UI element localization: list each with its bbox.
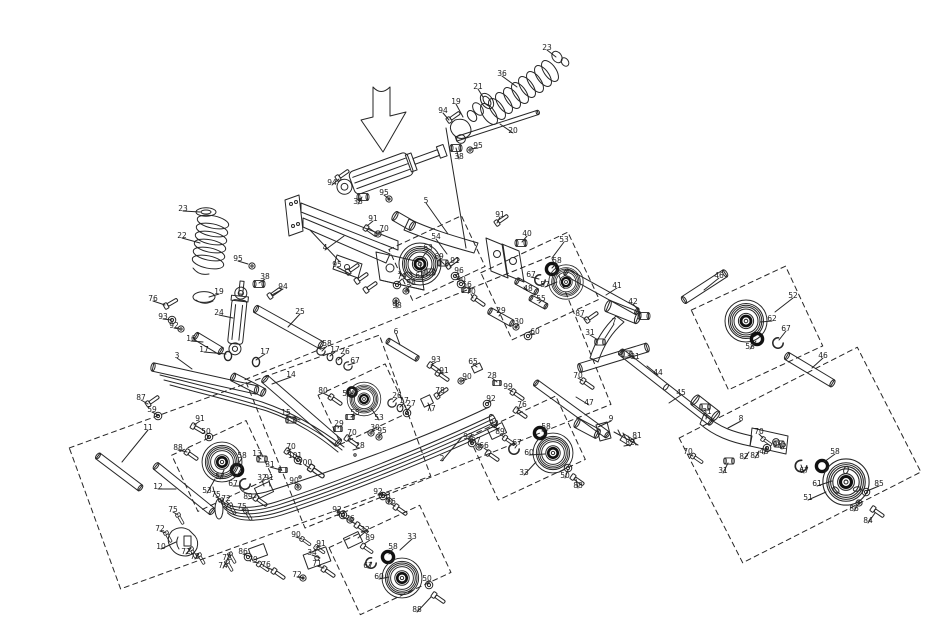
part-number-callout: 91 xyxy=(450,256,460,265)
diagram-canvas: 2336211994209538949538591702322199538942… xyxy=(0,0,949,621)
part-number-callout: 67 xyxy=(781,324,791,333)
parts-diagram: 2336211994209538949538591702322199538942… xyxy=(0,0,949,621)
part-number-callout: 75 xyxy=(237,502,247,511)
part-number-callout: 84 xyxy=(863,516,873,525)
part-number-callout: 22 xyxy=(177,231,187,240)
part-number-callout: 57 xyxy=(540,280,550,289)
part-number-callout: 89 xyxy=(243,492,253,501)
part-number-callout: 55 xyxy=(350,408,360,417)
part-number-callout: 88 xyxy=(412,605,422,614)
part-number-callout: 46 xyxy=(714,271,724,280)
part-number-callout: 91 xyxy=(368,214,378,223)
part-number-callout: 94 xyxy=(278,282,288,291)
part-number-callout: 31 xyxy=(702,407,712,416)
part-number-callout: 72 xyxy=(292,570,302,579)
part-number-callout: 42 xyxy=(777,442,787,451)
part-number-callout: 5 xyxy=(424,196,429,205)
part-number-callout: 77 xyxy=(426,404,436,413)
part-number-callout: 58 xyxy=(552,256,562,265)
part-number-callout: 25 xyxy=(295,307,305,316)
part-number-callout: 93 xyxy=(431,355,441,364)
front-shock-absorber xyxy=(225,280,250,355)
part-number-callout: 76 xyxy=(148,294,158,303)
part-number-callout: 76 xyxy=(386,497,396,506)
leader-line xyxy=(122,430,148,462)
part-number-callout: 60 xyxy=(524,448,534,457)
part-number-callout: 58 xyxy=(541,422,551,431)
part-number-callout: 38 xyxy=(454,152,464,161)
part-number-callout: 19 xyxy=(214,287,224,296)
part-number-callout: 58 xyxy=(830,447,840,456)
front-spring-assembly xyxy=(191,208,230,303)
part-number-callout: 95 xyxy=(233,254,243,263)
part-number-callout: 23 xyxy=(178,204,188,213)
part-number-callout: 91 xyxy=(264,473,274,482)
part-number-callout: 26 xyxy=(340,347,350,356)
part-number-callout: 70 xyxy=(466,287,476,296)
part-number-callout: 46 xyxy=(818,351,828,360)
part-number-callout: 52 xyxy=(788,291,798,300)
leader-line xyxy=(426,203,448,234)
part-number-callout: 70 xyxy=(754,427,764,436)
part-number-callout: 72 xyxy=(155,524,165,533)
left-rail xyxy=(150,362,344,452)
part-number-callout: 50 xyxy=(422,574,432,583)
part-number-callout: 75 xyxy=(168,505,178,514)
part-number-callouts: 2336211994209538949538591702322199538942… xyxy=(136,43,884,614)
part-number-callout: 70 xyxy=(286,442,296,451)
part-number-callout: 38 xyxy=(353,197,363,206)
part-number-callout: 95 xyxy=(473,141,483,150)
part-number-callout: 88 xyxy=(173,443,183,452)
part-number-callout: 48 xyxy=(523,284,533,293)
part-number-callout: 91 xyxy=(495,210,505,219)
part-number-callout: 75 xyxy=(211,490,221,499)
part-number-callout: 58 xyxy=(237,451,247,460)
part-number-callout: 98 xyxy=(392,301,402,310)
part-number-callout: 19 xyxy=(451,97,461,106)
part-number-callout: 12 xyxy=(153,482,163,491)
part-number-callout: 4 xyxy=(323,243,328,252)
part-number-callout: 91 xyxy=(195,414,205,423)
part-number-callout: 92 xyxy=(486,394,496,403)
rear-arm-8 xyxy=(689,394,788,454)
part-number-callout: 17 xyxy=(260,347,270,356)
part-number-callout: 76 xyxy=(517,400,527,409)
part-number-callout: 67 xyxy=(228,479,238,488)
part-number-callout: 9 xyxy=(609,414,614,423)
part-number-callout: 58 xyxy=(388,542,398,551)
part-number-callout: 27 xyxy=(406,399,416,408)
part-number-callout: 47 xyxy=(584,398,594,407)
part-number-callout: 78 xyxy=(435,386,445,395)
part-number-callout: 10 xyxy=(156,542,166,551)
part-number-callout: 2 xyxy=(440,454,445,463)
part-number-callout: 23 xyxy=(542,43,552,52)
part-number-callout: 28 xyxy=(487,371,497,380)
part-number-callout: 40 xyxy=(522,229,532,238)
part-number-callout: 82 xyxy=(739,452,749,461)
part-number-callout: 16 xyxy=(186,334,196,343)
part-number-callout: 33 xyxy=(407,532,417,541)
part-number-callout: 58 xyxy=(745,342,755,351)
part-number-callout: 33 xyxy=(519,468,529,477)
part-number-callout: 54 xyxy=(431,232,441,241)
part-number-callout: 95 xyxy=(332,260,342,269)
part-number-callout: 36 xyxy=(497,69,507,78)
part-number-callout: 69 xyxy=(434,252,444,261)
part-number-callout: 86 xyxy=(849,504,859,513)
part-number-callout: 29 xyxy=(334,419,344,428)
part-number-callout: 63 xyxy=(423,243,433,252)
leader-lines xyxy=(122,50,879,612)
part-number-callout: 100 xyxy=(298,458,313,467)
part-number-callout: 92 xyxy=(169,321,179,330)
part-number-callout: 20 xyxy=(508,126,518,135)
part-number-callout: 87 xyxy=(136,393,146,402)
part-number-callout: 95 xyxy=(379,188,389,197)
part-number-callout: 91 xyxy=(316,539,326,548)
part-number-callout: 80 xyxy=(318,386,328,395)
part-number-callout: 67 xyxy=(363,561,373,570)
part-number-callout: 76 xyxy=(345,514,355,523)
part-number-callout: 67 xyxy=(350,356,360,365)
part-number-callout: 51 xyxy=(803,493,813,502)
part-number-callout: 67 xyxy=(512,438,522,447)
part-number-callout: 50 xyxy=(201,427,211,436)
part-number-callout: 7 xyxy=(612,317,617,326)
part-number-callout: 57 xyxy=(215,472,225,481)
part-number-callout: 62 xyxy=(767,314,777,323)
part-number-callout: 76 xyxy=(261,560,271,569)
part-number-callout: 64 xyxy=(415,271,425,280)
part-number-callout: 60 xyxy=(374,572,384,581)
part-number-callout: 90 xyxy=(291,530,301,539)
part-number-callout: 43 xyxy=(759,447,769,456)
part-number-callout: 50 xyxy=(560,471,570,480)
part-number-callout: 99 xyxy=(503,382,513,391)
part-number-callout: 8 xyxy=(739,414,744,423)
part-number-callout: 24 xyxy=(214,308,224,317)
part-number-callout: 53 xyxy=(374,413,384,422)
part-number-callout: 53 xyxy=(559,235,569,244)
part-number-callout: 14 xyxy=(286,370,296,379)
part-number-callout: 94 xyxy=(327,178,337,187)
part-number-callout: 70 xyxy=(573,371,583,380)
part-number-callout: 85 xyxy=(874,479,884,488)
part-number-callout: 3 xyxy=(175,351,180,360)
part-number-callout: 61 xyxy=(812,479,822,488)
part-number-callout: 87 xyxy=(575,309,585,318)
part-number-callout: 60 xyxy=(530,327,540,336)
part-number-callout: 72 xyxy=(221,494,231,503)
rear-spring-assembly xyxy=(446,49,571,248)
part-number-callout: 70 xyxy=(347,428,357,437)
part-number-callout: 83 xyxy=(750,451,760,460)
part-number-callout: 86 xyxy=(238,547,248,556)
part-number-callout: 17 xyxy=(199,345,209,354)
part-number-callout: 67 xyxy=(799,466,809,475)
part-number-callout: 29 xyxy=(496,306,506,315)
part-number-callout: 34 xyxy=(307,548,317,557)
part-number-callout: 45 xyxy=(676,388,686,397)
part-number-callout: 73 xyxy=(190,552,200,561)
part-number-callout: 42 xyxy=(628,297,638,306)
part-number-callout: 90 xyxy=(462,372,472,381)
part-number-callout: 94 xyxy=(438,106,448,115)
part-number-callout: 31 xyxy=(265,460,275,469)
part-number-callout: 91 xyxy=(439,366,449,375)
part-number-callout: 79 xyxy=(248,555,258,564)
link-11 xyxy=(95,452,144,492)
part-number-callout: 44 xyxy=(653,368,663,377)
part-number-callout: 96 xyxy=(454,266,464,275)
part-number-callout: 31 xyxy=(585,328,595,337)
part-number-callout: 93 xyxy=(158,312,168,321)
rear-shock-absorber xyxy=(333,139,449,201)
leader-line xyxy=(775,298,793,312)
part-number-callout: 55 xyxy=(536,294,546,303)
part-number-callout: 21 xyxy=(473,82,483,91)
part-number-callout: 59 xyxy=(147,405,157,414)
part-number-callout: 70 xyxy=(683,447,693,456)
part-number-callout: 31 xyxy=(718,466,728,475)
part-number-callout: 70 xyxy=(379,224,389,233)
part-number-callout: 15 xyxy=(281,408,291,417)
part-number-callout: 11 xyxy=(143,423,153,432)
part-number-callout: 90 xyxy=(289,476,299,485)
highlight-arrow-icon xyxy=(361,87,406,152)
part-number-callout: 38 xyxy=(260,272,270,281)
part-number-callout: 66 xyxy=(479,441,489,450)
part-number-callout: 13 xyxy=(252,449,262,458)
part-number-callout: 89 xyxy=(495,427,505,436)
part-number-callout: 58 xyxy=(342,389,352,398)
part-number-callout: 30 xyxy=(514,317,524,326)
part-number-callout: 28 xyxy=(355,441,365,450)
part-number-callout: 89 xyxy=(365,533,375,542)
part-number-callout: 65 xyxy=(468,357,478,366)
part-number-callout: 71 xyxy=(312,559,322,568)
part-number-callout: 82 xyxy=(625,438,635,447)
part-number-callout: 41 xyxy=(612,281,622,290)
part-number-callout: 98 xyxy=(406,278,416,287)
part-number-callout: 6 xyxy=(394,327,399,336)
part-number-callout: 88 xyxy=(573,481,583,490)
tube-46b xyxy=(783,352,836,388)
part-number-callout: 17 xyxy=(330,345,340,354)
part-number-callout: 31 xyxy=(630,352,640,361)
part-number-callout: 95 xyxy=(377,426,387,435)
part-number-callout: 74 xyxy=(218,561,228,570)
part-number-callout: 67 xyxy=(526,270,536,279)
